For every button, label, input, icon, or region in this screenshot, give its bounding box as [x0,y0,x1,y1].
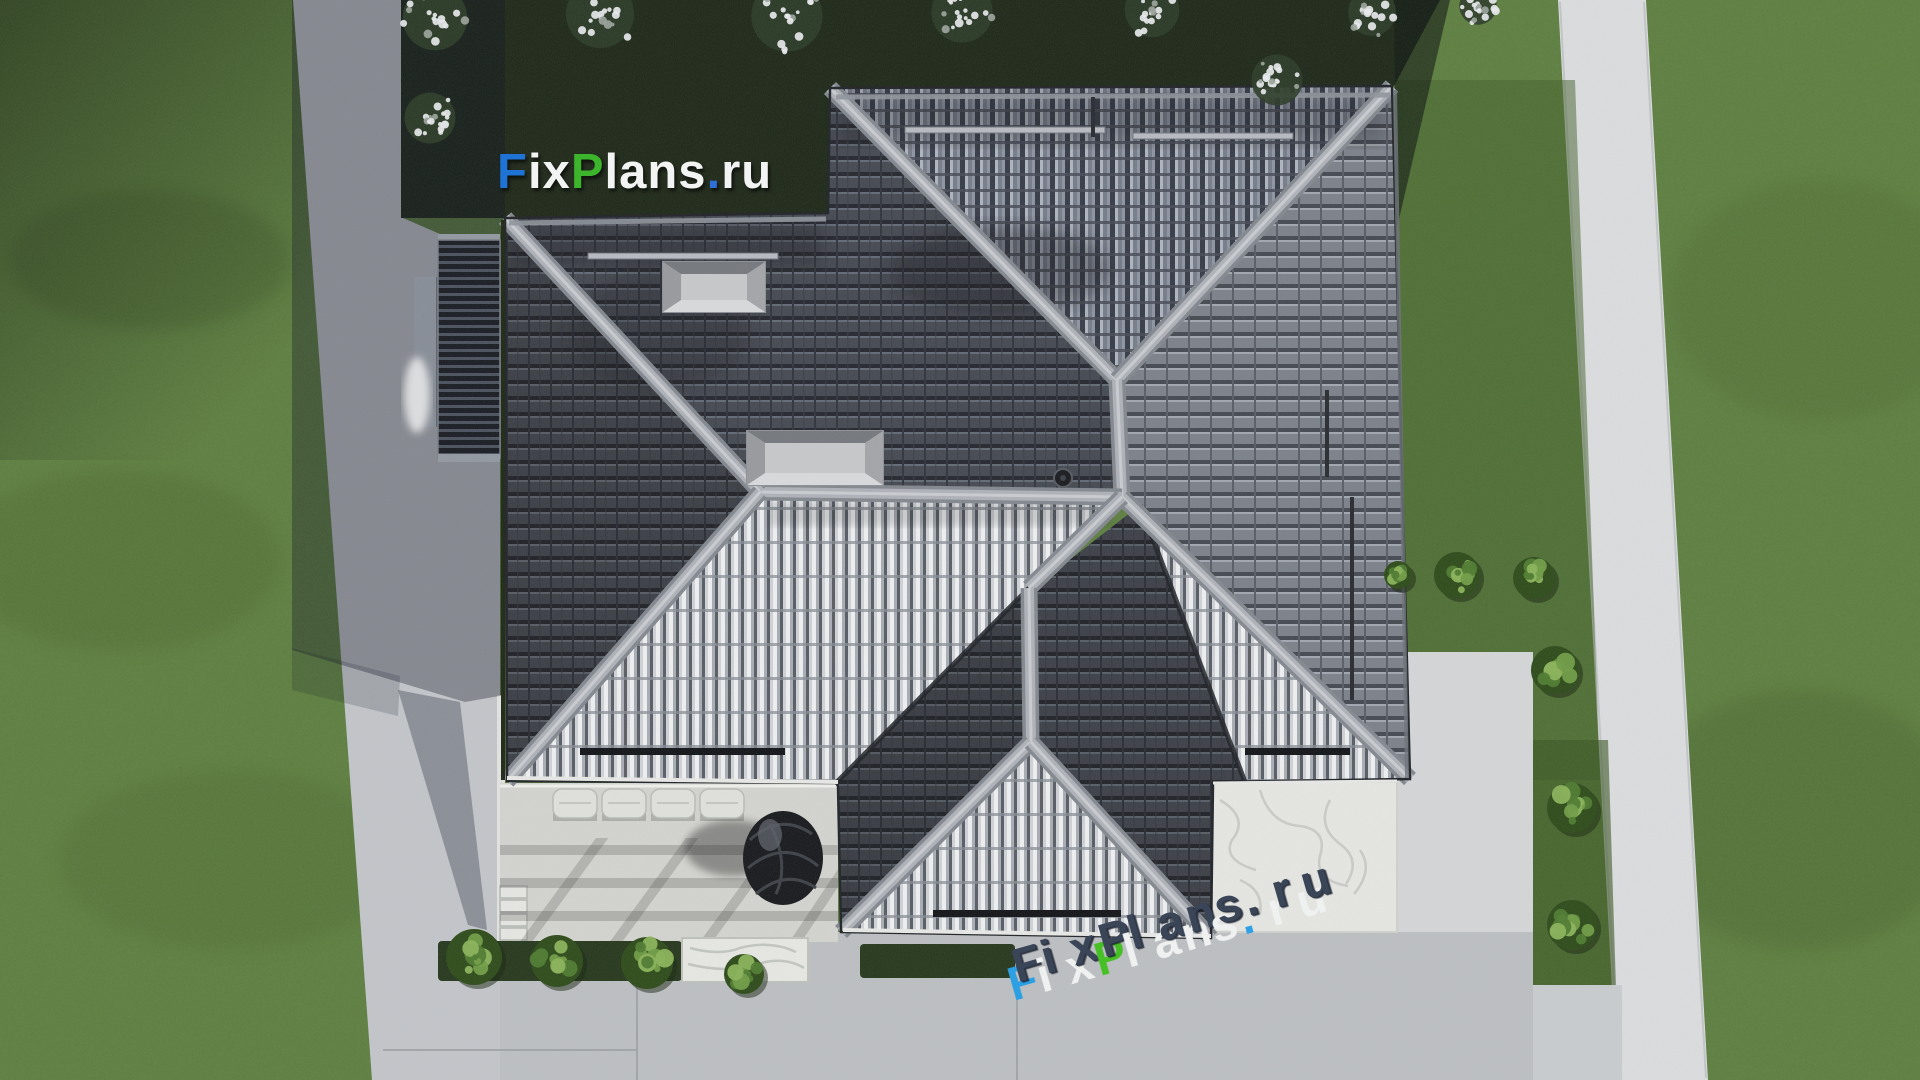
watermark-3d-letter: uu [1291,852,1336,918]
watermark-segment: P [571,144,605,200]
watermark-segment: . [707,144,722,200]
watermark-segment: F [497,144,528,200]
watermark-segment: ix [528,144,571,200]
watermark-segment: lans [605,144,707,200]
scene-svg [0,0,1920,1080]
film-grain [0,0,1920,1080]
fixplans-watermark: FixPlans.ru [497,144,772,200]
aerial-house-render: FixPlans.ru FFiixxPPllaannss..rruu [0,0,1920,1080]
watermark-segment: ru [721,144,772,200]
